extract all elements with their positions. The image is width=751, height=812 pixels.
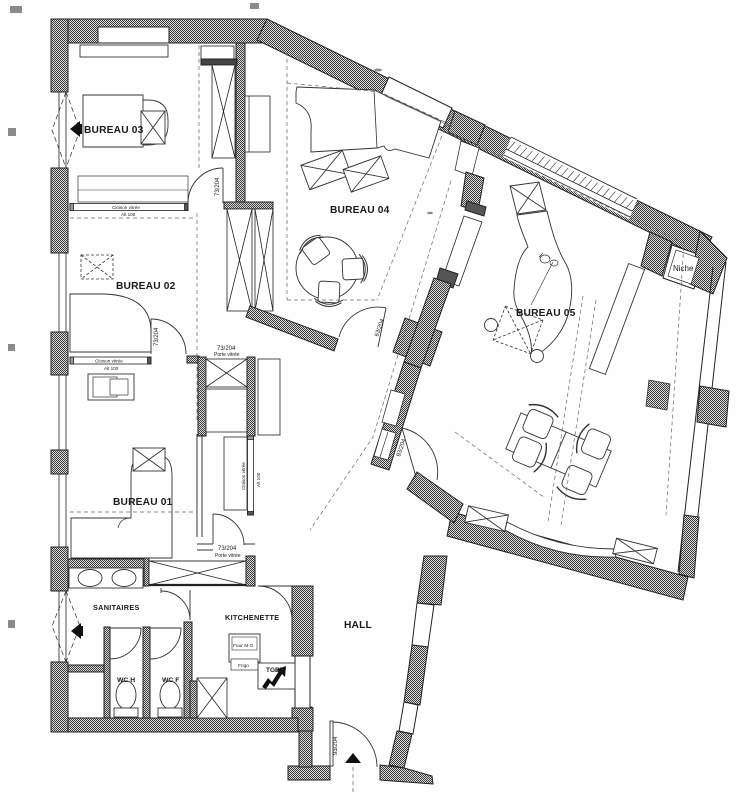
- svg-text:WC H: WC H: [117, 677, 135, 684]
- svg-text:BUREAU 01: BUREAU 01: [113, 497, 173, 508]
- svg-text:BUREAU 02: BUREAU 02: [116, 281, 176, 292]
- svg-text:Cloison vitrée: Cloison vitrée: [112, 205, 140, 210]
- svg-text:TGBT: TGBT: [266, 667, 284, 674]
- svg-text:73/204: 73/204: [218, 546, 237, 552]
- svg-text:WC F: WC F: [162, 677, 179, 684]
- svg-text:Cloison vitrée: Cloison vitrée: [241, 462, 246, 490]
- svg-text:BUREAU 04: BUREAU 04: [330, 205, 390, 216]
- svg-text:Porte vitrée: Porte vitrée: [215, 553, 241, 559]
- svg-text:Porte vitrée: Porte vitrée: [214, 352, 240, 358]
- svg-text:Four M.O: Four M.O: [233, 643, 254, 649]
- svg-text:Niche: Niche: [673, 264, 694, 273]
- svg-text:HALL: HALL: [344, 620, 372, 631]
- svg-text:Frigo: Frigo: [238, 663, 249, 669]
- svg-text:BUREAU 03: BUREAU 03: [84, 125, 144, 136]
- svg-text:73/204: 73/204: [215, 177, 221, 196]
- svg-text:SANITAIRES: SANITAIRES: [93, 603, 140, 612]
- svg-text:Alt 100: Alt 100: [104, 366, 119, 371]
- svg-text:BUREAU 05: BUREAU 05: [516, 308, 576, 319]
- svg-text:Alt 100: Alt 100: [256, 472, 261, 487]
- svg-text:KITCHENETTE: KITCHENETTE: [225, 613, 279, 622]
- svg-text:Alt 100: Alt 100: [121, 212, 136, 217]
- svg-text:73/204: 73/204: [154, 327, 160, 346]
- svg-text:93/204: 93/204: [333, 736, 339, 755]
- svg-text:Cloison vitrée: Cloison vitrée: [95, 359, 123, 364]
